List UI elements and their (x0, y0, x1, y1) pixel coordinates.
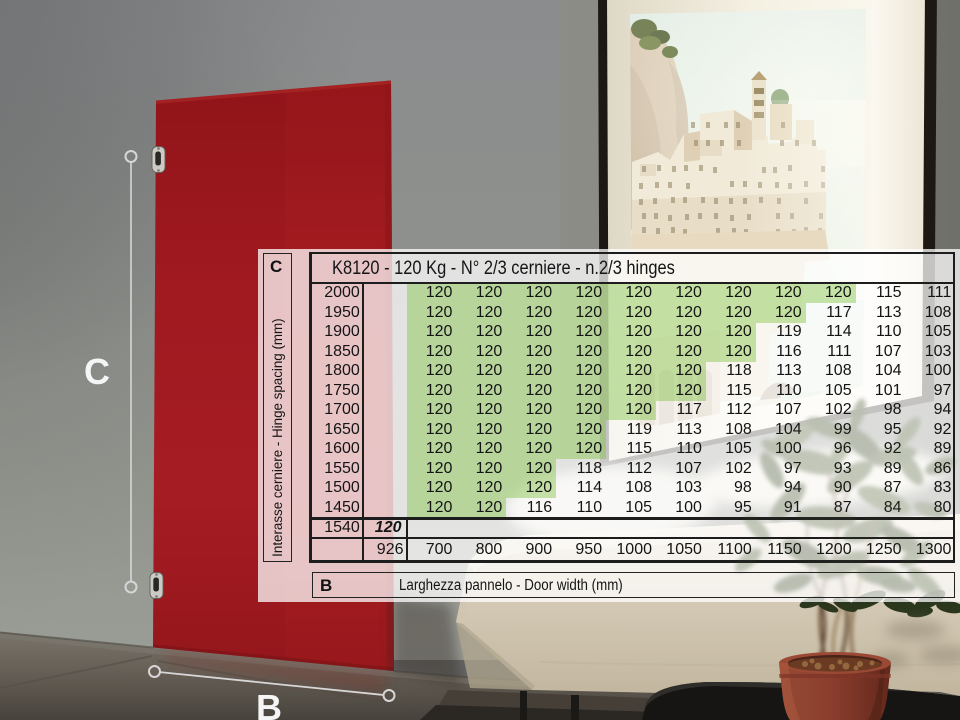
svg-text:B: B (256, 687, 282, 720)
svg-text:C: C (84, 351, 110, 392)
